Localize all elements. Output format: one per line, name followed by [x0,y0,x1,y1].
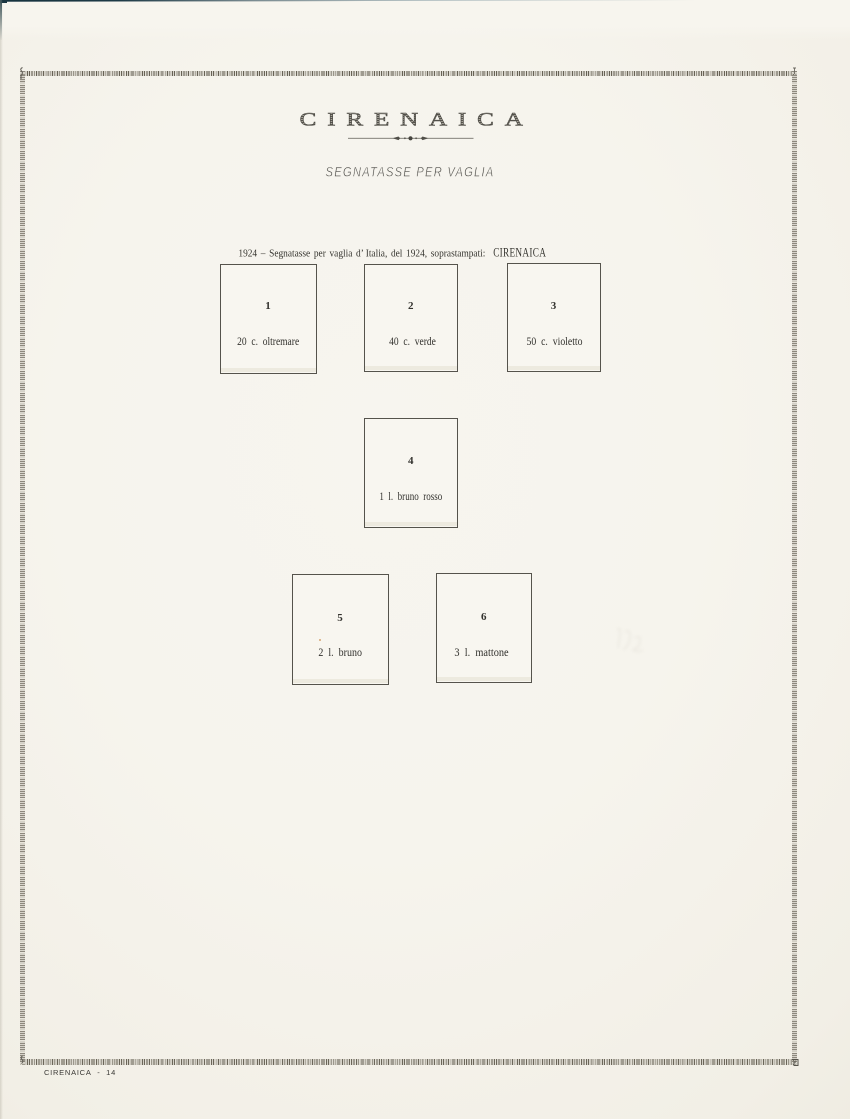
svg-text:1924 – Segnatasse per vaglia d: 1924 – Segnatasse per vaglia d’ Italia, … [238,248,485,259]
svg-text:CIRENAICA: CIRENAICA [300,111,534,131]
svg-text:SEGNATASSE PER VAGLIA: SEGNATASSE PER VAGLIA [326,164,495,180]
svg-text:CIRENAICA: CIRENAICA [493,245,546,259]
